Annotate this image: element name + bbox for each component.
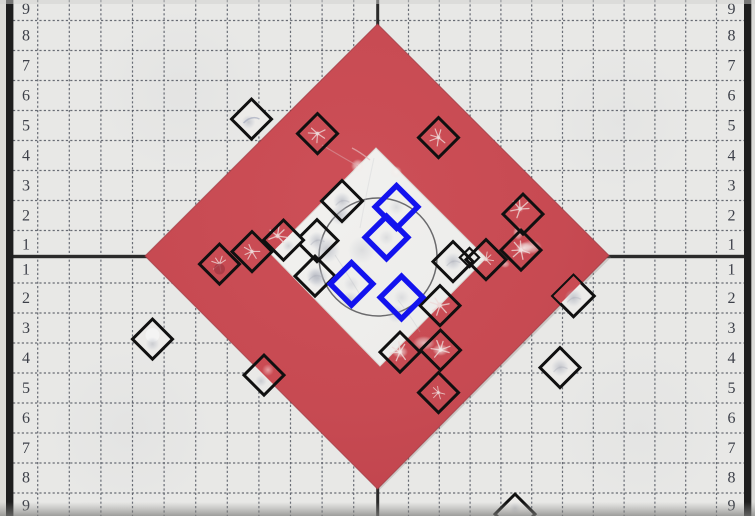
svg-text:6: 6 <box>728 88 736 105</box>
svg-text:4: 4 <box>22 148 30 165</box>
svg-text:4: 4 <box>728 350 736 367</box>
svg-text:7: 7 <box>22 440 30 457</box>
svg-text:2: 2 <box>22 208 30 225</box>
svg-text:5: 5 <box>728 118 736 135</box>
svg-text:7: 7 <box>728 440 736 457</box>
svg-text:8: 8 <box>728 470 736 487</box>
svg-text:1: 1 <box>728 237 736 254</box>
svg-text:6: 6 <box>22 410 30 427</box>
svg-text:6: 6 <box>22 88 30 105</box>
svg-text:5: 5 <box>22 118 30 135</box>
svg-text:8: 8 <box>22 28 30 45</box>
svg-text:8: 8 <box>22 470 30 487</box>
svg-text:6: 6 <box>728 410 736 427</box>
svg-text:4: 4 <box>728 148 736 165</box>
svg-text:5: 5 <box>22 380 30 397</box>
svg-text:3: 3 <box>728 320 736 337</box>
svg-text:1: 1 <box>22 237 30 254</box>
svg-text:3: 3 <box>22 178 30 195</box>
svg-text:7: 7 <box>728 58 736 75</box>
svg-text:3: 3 <box>728 178 736 195</box>
svg-text:3: 3 <box>22 320 30 337</box>
svg-text:1: 1 <box>728 262 736 279</box>
svg-text:5: 5 <box>728 380 736 397</box>
svg-text:2: 2 <box>22 290 30 307</box>
svg-text:8: 8 <box>728 28 736 45</box>
svg-text:1: 1 <box>22 262 30 279</box>
svg-text:2: 2 <box>728 290 736 307</box>
svg-text:2: 2 <box>728 208 736 225</box>
svg-text:4: 4 <box>22 350 30 367</box>
svg-text:7: 7 <box>22 58 30 75</box>
